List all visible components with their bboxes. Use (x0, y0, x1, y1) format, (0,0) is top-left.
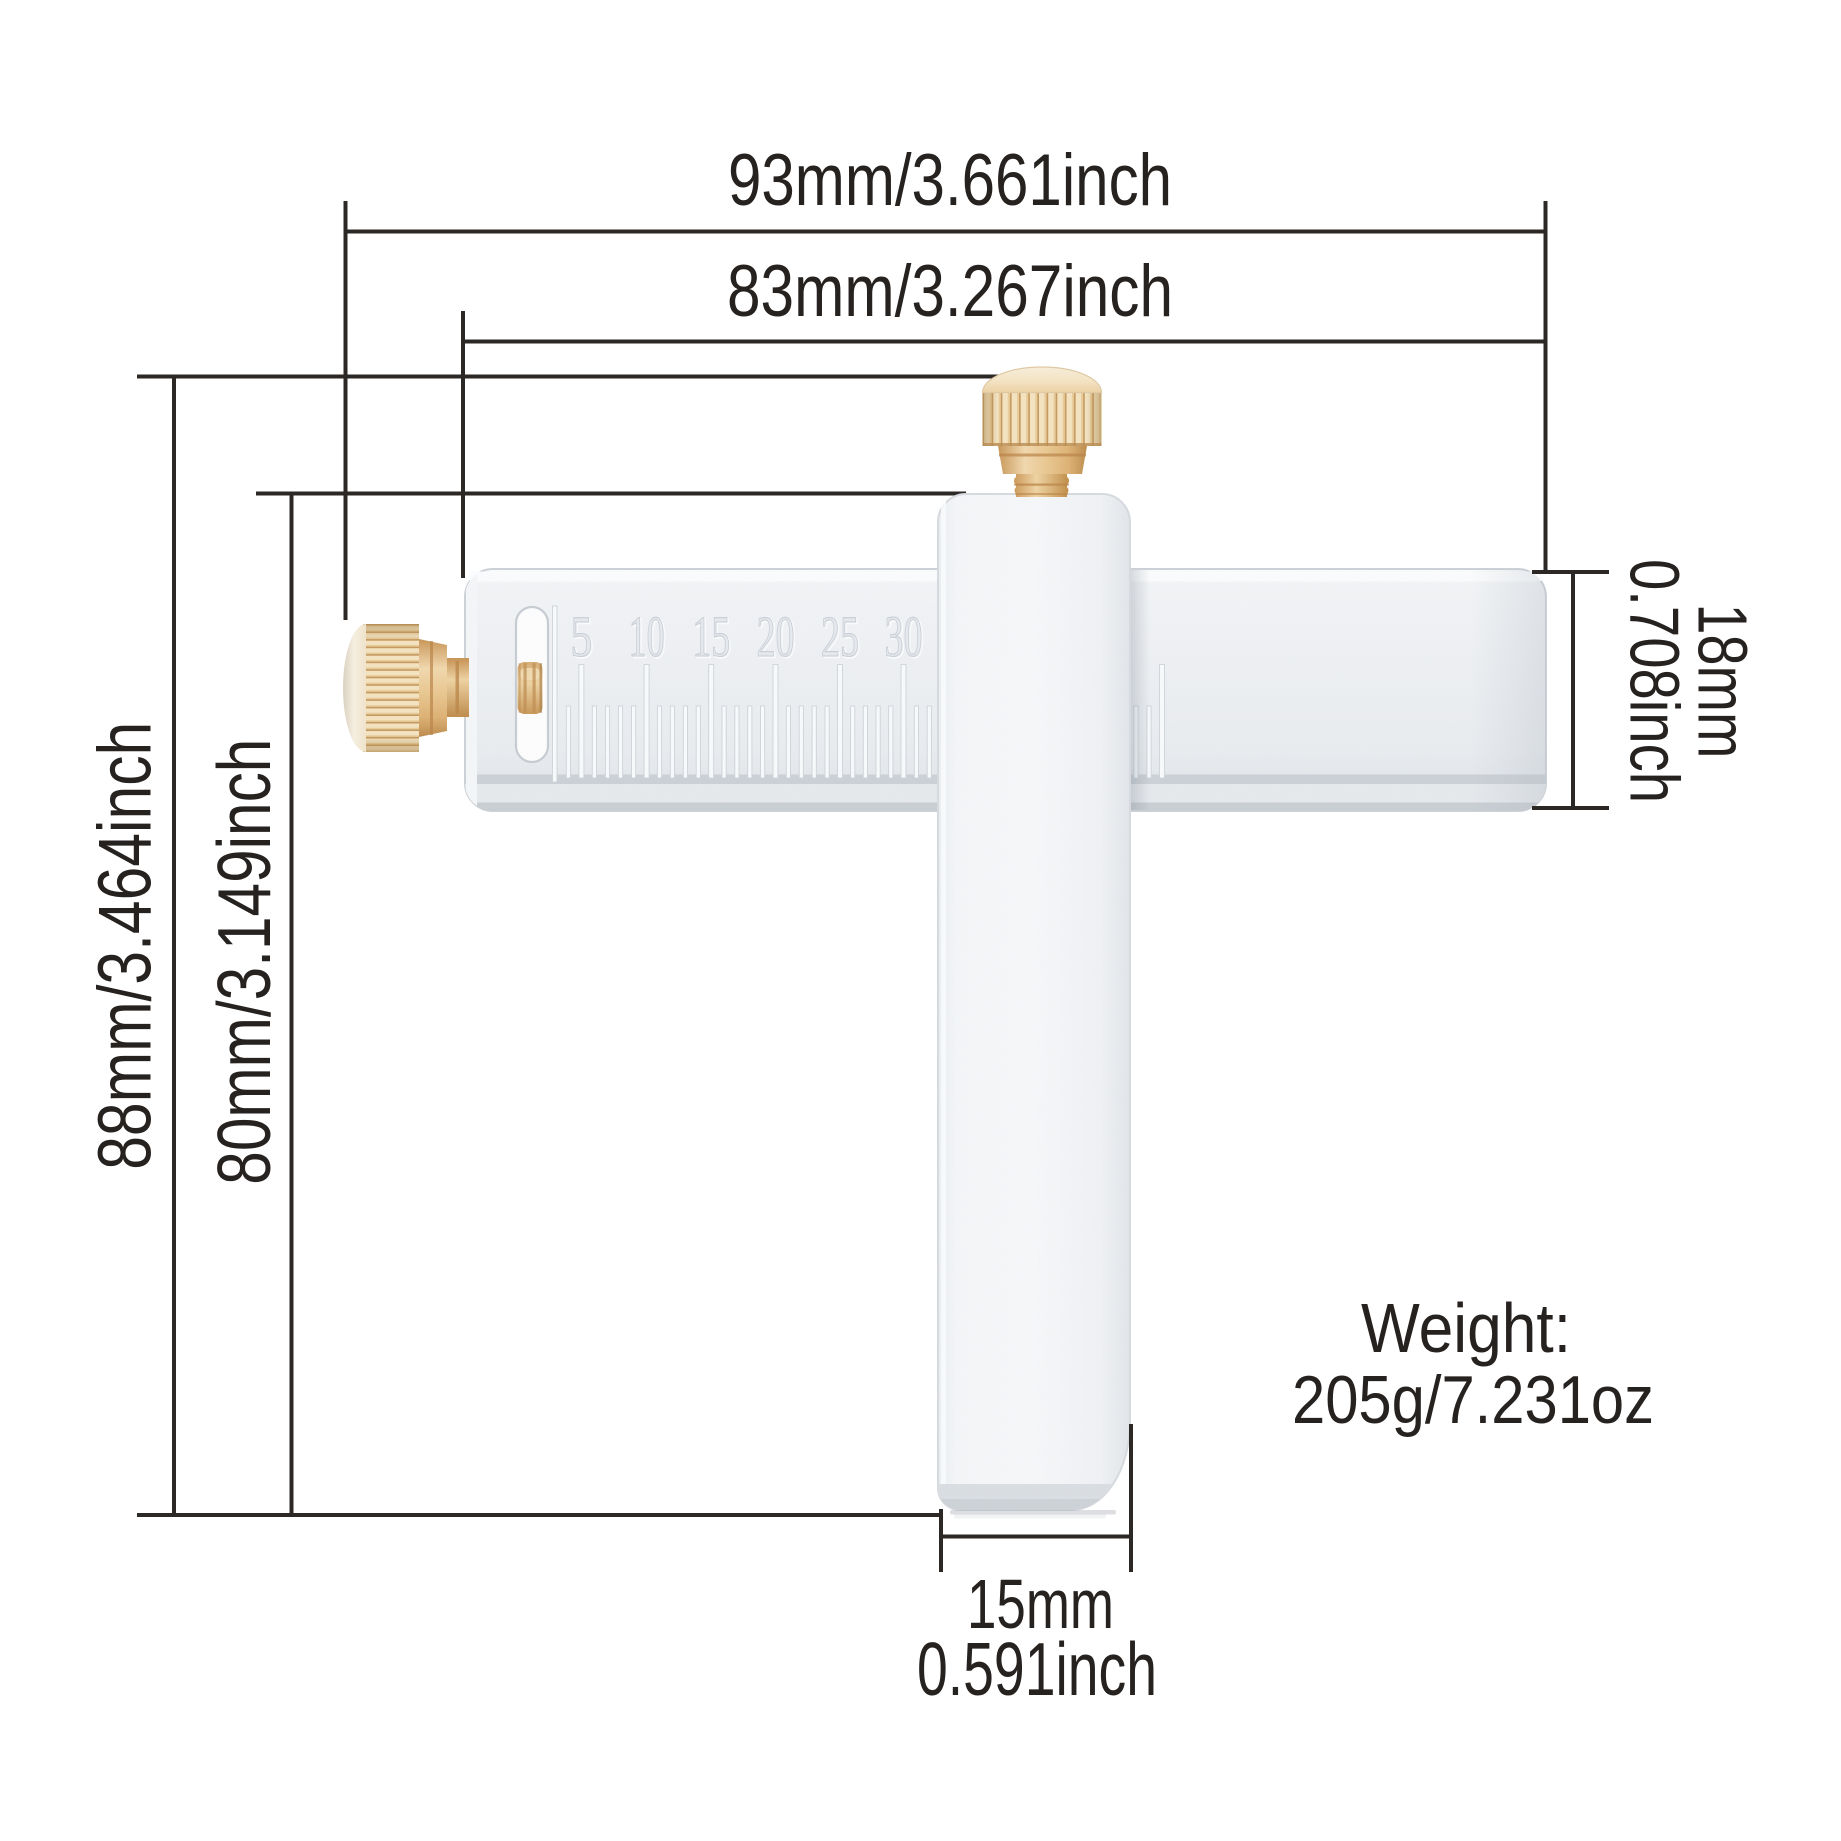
svg-text:30: 30 (885, 604, 923, 669)
svg-text:205g/7.231oz: 205g/7.231oz (1292, 1362, 1654, 1438)
svg-text:83mm/3.267inch: 83mm/3.267inch (727, 251, 1173, 332)
svg-text:10: 10 (629, 604, 665, 669)
svg-text:Weight:: Weight: (1361, 1289, 1571, 1367)
svg-text:5: 5 (570, 604, 592, 669)
svg-text:25: 25 (821, 604, 859, 669)
svg-text:15: 15 (692, 604, 730, 669)
svg-text:18mm: 18mm (1684, 604, 1762, 759)
svg-text:20: 20 (757, 604, 795, 669)
svg-text:0.591inch: 0.591inch (917, 1627, 1157, 1711)
svg-text:88mm/3.464inch: 88mm/3.464inch (82, 722, 166, 1170)
svg-text:93mm/3.661inch: 93mm/3.661inch (728, 140, 1172, 221)
svg-text:80mm/3.149inch: 80mm/3.149inch (202, 739, 286, 1185)
svg-text:0.708inch: 0.708inch (1616, 559, 1694, 803)
